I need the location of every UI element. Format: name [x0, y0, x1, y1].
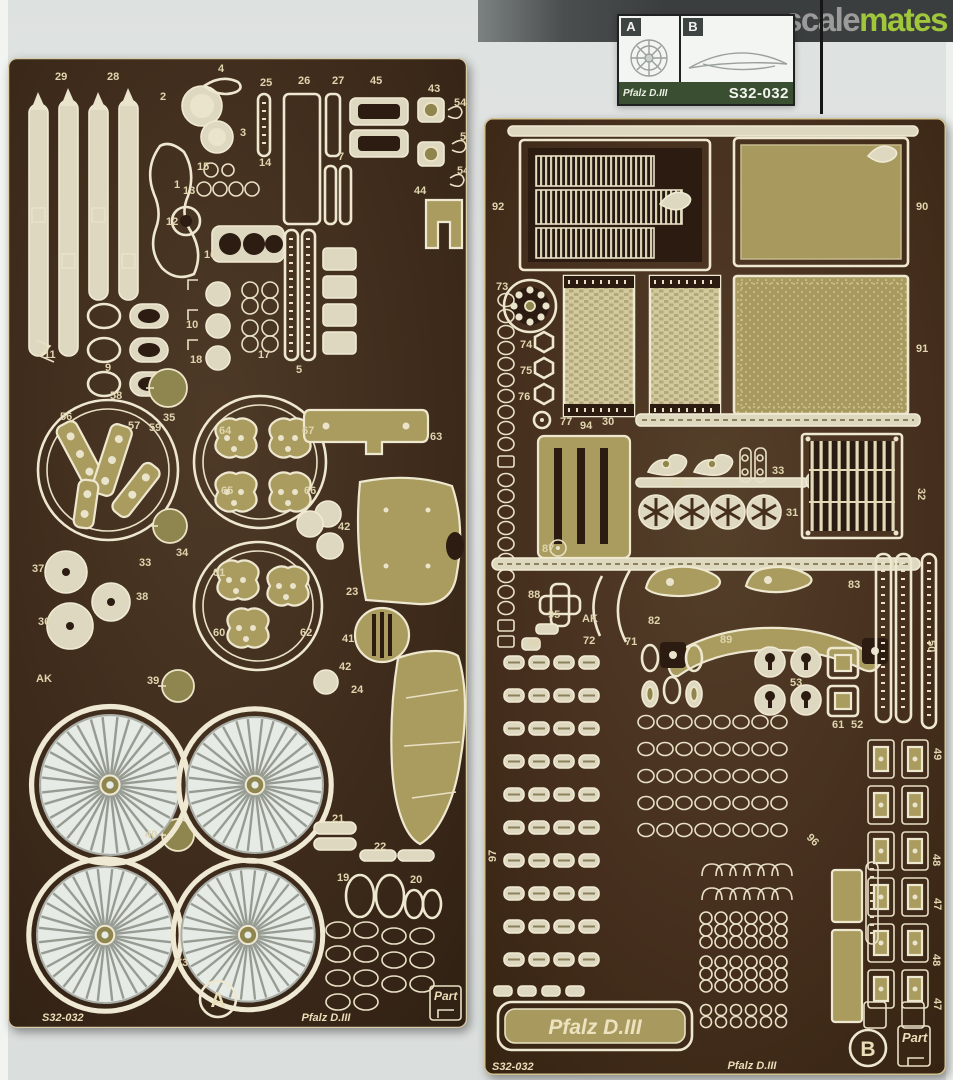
- photoetch-fret-b: Pfalz D.III B Part 929073747576779430916…: [484, 118, 946, 1075]
- part-number-label: 88: [528, 589, 540, 601]
- product-card: A B: [617, 14, 795, 106]
- part-number-label: 91: [916, 343, 928, 355]
- part-number-label: 61: [213, 567, 225, 579]
- part-number-label: 40: [145, 829, 157, 841]
- part-number-label: 48: [930, 854, 942, 866]
- part-number-label: 58: [110, 390, 122, 402]
- part-number-label: 42: [338, 521, 350, 533]
- photoetch-fret-a: A Part 292842325262745435455541514113121…: [8, 58, 467, 1028]
- part-number-label: 95: [548, 609, 560, 621]
- part-number-label: S32-032: [42, 1012, 84, 1024]
- part-number-label: 61: [832, 719, 844, 731]
- small-bar-part: [518, 986, 536, 996]
- part-number-label: 54: [454, 97, 467, 109]
- part-number-label: 38: [136, 591, 148, 603]
- fret-a-thumbnail-icon: [621, 36, 677, 80]
- part-number-label: 26: [298, 75, 310, 87]
- part-number-label: 90: [916, 201, 928, 213]
- part-number-label: 29: [55, 71, 67, 83]
- part-number-label: 62: [672, 477, 684, 489]
- part-number-label: 43: [428, 83, 440, 95]
- part-number-label: 73: [496, 281, 508, 293]
- part-number-label: 1: [174, 179, 180, 191]
- part-number-label: 13: [183, 185, 195, 197]
- part-number-label: 22: [374, 841, 386, 853]
- part-number-label: 76: [518, 391, 530, 403]
- part-number-label: 67: [302, 425, 314, 437]
- fret-b-thumbnail-icon: [683, 34, 793, 80]
- card-diagram-cells: A B: [619, 16, 793, 82]
- part-number-label: 52: [851, 719, 863, 731]
- part-number-label: 44: [414, 185, 427, 197]
- part-number-label: 60: [213, 627, 225, 639]
- rosette-part-73: [504, 280, 556, 332]
- part-number-label: 4: [218, 63, 225, 75]
- part-number-label: 57: [128, 420, 140, 432]
- part-number-label: 71: [625, 636, 637, 648]
- small-bar-part: [494, 986, 512, 996]
- part-number-label: 3: [240, 127, 246, 139]
- part-number-label: 72: [583, 635, 595, 647]
- part-number-label: 54: [457, 165, 467, 177]
- part-number-label: AK: [582, 613, 598, 625]
- part-number-label: 17: [258, 349, 270, 361]
- part-number-label: 73: [176, 957, 188, 969]
- part-number-label: 89: [720, 634, 732, 646]
- background-left-strip: [0, 0, 8, 1080]
- part-number-label: 21: [332, 813, 344, 825]
- part-number-label: 83: [848, 579, 860, 591]
- part-number-label: 11: [44, 349, 56, 361]
- nameplate-part: Pfalz D.III: [498, 1002, 692, 1050]
- part-number-label: 53: [790, 677, 802, 689]
- part-number-label: 14: [259, 157, 272, 169]
- card-label-a: A: [621, 18, 641, 36]
- part-number-label: 94: [580, 420, 593, 432]
- small-bar-part: [566, 986, 584, 996]
- part-number-label: 9: [105, 362, 111, 374]
- part-number-label: 28: [107, 71, 119, 83]
- part-number-label: Pfalz D.III: [728, 1060, 778, 1072]
- part-number-label: 37: [32, 563, 44, 575]
- part-number-label: 64: [219, 425, 232, 437]
- part-number-label: 19: [337, 872, 349, 884]
- part-number-label: 47: [931, 998, 943, 1010]
- part-number-label: 31: [786, 507, 798, 519]
- part-number-label: 23: [346, 586, 358, 598]
- part-number-label: 35: [163, 412, 175, 424]
- stippled-panel-part-91: [734, 276, 908, 414]
- part-number-label: 97: [487, 850, 499, 862]
- part-number-label: 55: [460, 131, 467, 143]
- small-bar-part: [542, 986, 560, 996]
- part-number-label: 49: [931, 748, 943, 760]
- part-number-label: 33: [772, 465, 784, 477]
- top-strip-part: [508, 126, 918, 136]
- part-number-label: 77: [560, 416, 572, 428]
- part-number-label: 41: [342, 633, 354, 645]
- part-number-label: 32: [915, 488, 927, 500]
- nameplate-text: Pfalz D.III: [548, 1016, 643, 1039]
- part-number-label: 87: [542, 543, 554, 555]
- frame-letter-b: B: [860, 1038, 875, 1061]
- part-number-label: 92: [492, 201, 504, 213]
- part-number-label: 56: [60, 411, 72, 423]
- part-number-label: 65: [221, 485, 233, 497]
- part-number-label: 16: [204, 249, 216, 261]
- part-number-label: 30: [602, 416, 614, 428]
- card-product-sku: S32-032: [729, 85, 789, 102]
- part-number-label: Pfalz D.III: [302, 1012, 352, 1024]
- part-number-label: 48: [930, 954, 942, 966]
- part-number-label: 59: [149, 422, 161, 434]
- radiator-panel-part: [520, 140, 710, 270]
- part-number-label: 75: [520, 365, 532, 377]
- part-number-label: 39: [147, 675, 159, 687]
- part-brand-text-a: Part: [434, 989, 458, 1003]
- part-number-label: 5: [296, 364, 302, 376]
- part-number-label: 2: [160, 91, 166, 103]
- frame-letter-a: A: [210, 989, 225, 1012]
- card-product-name: Pfalz D.III: [623, 88, 667, 99]
- part-number-label: 36: [38, 616, 50, 628]
- part-number-label: 10: [186, 319, 198, 331]
- background-right-strip: [946, 0, 953, 1080]
- part-number-label: 18: [190, 354, 202, 366]
- photo-stage: scalemates A B: [0, 0, 953, 1080]
- part-brand-text-b: Part: [902, 1030, 928, 1045]
- part-number-label: 25: [260, 77, 272, 89]
- divider-line: [820, 0, 823, 114]
- part-number-label: 47: [931, 898, 943, 910]
- part-number-label: 33: [139, 557, 151, 569]
- louver-panel-part: [538, 436, 630, 558]
- part-number-label: 63: [430, 431, 442, 443]
- part-number-label: 50: [925, 640, 937, 652]
- part-number-label: AK: [36, 673, 52, 685]
- card-cell-b: B: [681, 16, 793, 82]
- fuselage-panel-part-90: [734, 138, 908, 266]
- part-number-label: 42: [339, 661, 351, 673]
- part-number-label: 34: [176, 547, 189, 559]
- part-number-label: 98: [528, 637, 540, 649]
- part-number-label: 12: [166, 216, 178, 228]
- part-number-label: 74: [520, 339, 533, 351]
- card-title-band: Pfalz D.III S32-032: [619, 82, 793, 104]
- scalemates-logo: scalemates: [784, 1, 947, 39]
- part-number-label: 20: [410, 874, 422, 886]
- part-number-label: 62: [300, 627, 312, 639]
- part-number-label: 27: [332, 75, 344, 87]
- card-cell-a: A: [619, 16, 681, 82]
- part-number-label: 66: [304, 485, 316, 497]
- part-number-label: 82: [648, 615, 660, 627]
- part-number-label: 45: [370, 75, 382, 87]
- part-number-label: 15: [197, 161, 209, 173]
- part-number-label: S32-032: [492, 1061, 534, 1073]
- part-number-label: 7: [338, 151, 344, 163]
- grille-part-32: [802, 434, 902, 538]
- logo-text-mates: mates: [859, 1, 947, 38]
- part-number-label: 24: [351, 684, 364, 696]
